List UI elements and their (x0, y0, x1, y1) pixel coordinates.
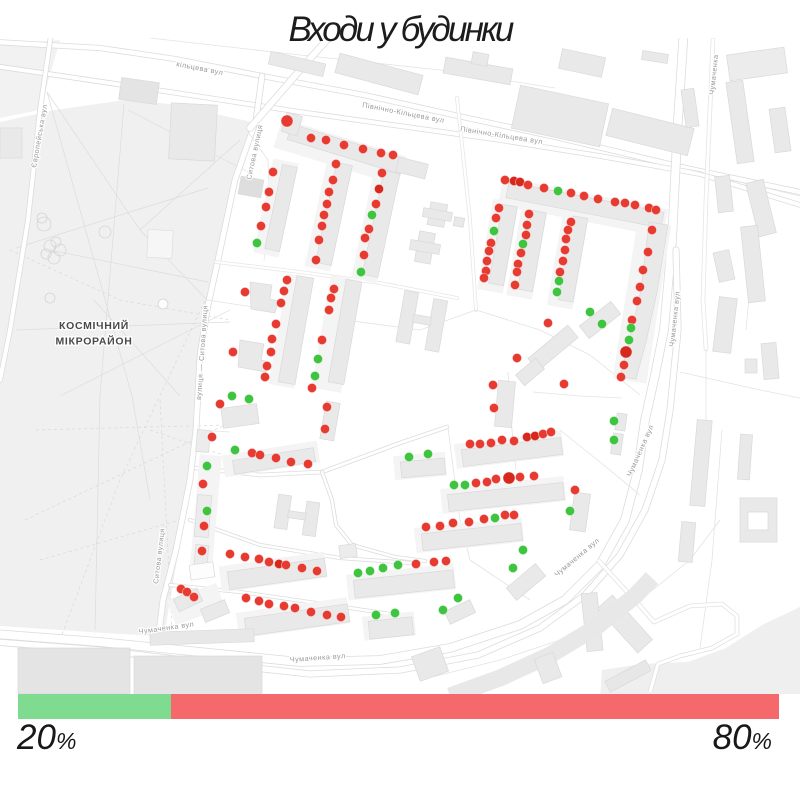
svg-text:Входи у будинки: Входи у будинки (289, 10, 514, 49)
